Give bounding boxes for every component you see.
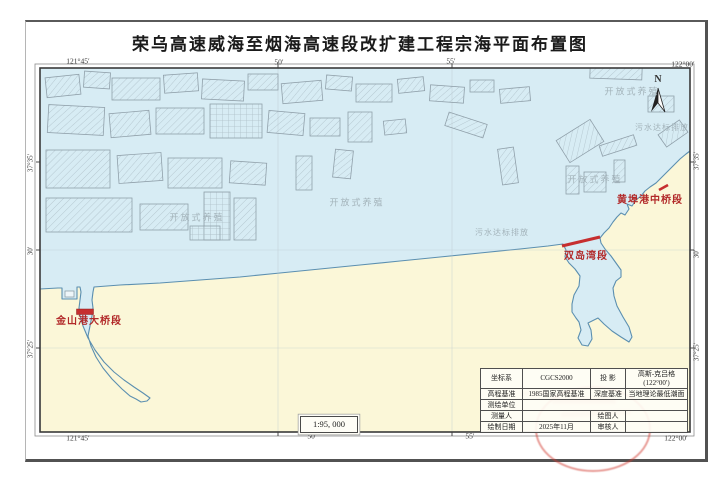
aquaculture-zone: [397, 77, 424, 94]
graticule-edge-label: 37°35′: [694, 152, 701, 170]
elev-label: 高程基准: [481, 389, 523, 400]
graticule-edge-label: 30′: [694, 250, 701, 259]
checker-value: [626, 422, 688, 433]
aquaculture-zone: [234, 198, 256, 240]
coord-value: CGCS2000: [523, 369, 591, 389]
aquaculture-area-label: 开放式养殖: [604, 88, 659, 97]
aquaculture-area-label: 污水达标排放: [475, 229, 529, 237]
proj-value: 高斯-克吕格 (122°00′): [626, 369, 688, 389]
aquaculture-area-label: 开放式养殖: [169, 214, 224, 223]
aquaculture-zone: [356, 84, 392, 102]
aquaculture-zone: [46, 198, 132, 232]
aquaculture-zone: [248, 74, 278, 90]
aquaculture-zone: [310, 118, 340, 136]
proj-label: 投 影: [591, 369, 626, 389]
aquaculture-zone: [429, 85, 464, 103]
graticule-corner-label: 55′: [465, 432, 474, 440]
scale-bar: 1:95, 000: [300, 416, 358, 433]
aquaculture-zone: [229, 161, 266, 185]
aquaculture-area-label: 污水达标排放: [635, 124, 689, 132]
depth-label: 深度基准: [591, 389, 626, 400]
proj-value-line2: (122°00′): [627, 379, 686, 387]
graticule-corner-label: 55′: [446, 57, 455, 65]
aquaculture-zone: [267, 110, 305, 135]
aquaculture-zone: [210, 104, 262, 138]
drafter-label: 绘图人: [591, 411, 626, 422]
aquaculture-zone: [112, 78, 160, 100]
aquaculture-zone: [117, 152, 163, 183]
aquaculture-zone: [163, 73, 198, 93]
aquaculture-zone: [325, 75, 352, 91]
survey-unit-value: [523, 400, 688, 411]
drafter-value: [626, 411, 688, 422]
graticule-edge-label: 30′: [28, 247, 35, 256]
bridge-section-label: 双岛湾段: [564, 252, 608, 262]
bridge-mark-jinshan: [77, 309, 94, 315]
aquaculture-zone: [46, 150, 110, 188]
aquaculture-zone: [296, 156, 312, 190]
aquaculture-zone: [168, 158, 222, 188]
aquaculture-zone: [499, 87, 530, 104]
scanned-map-page: 荣乌高速威海至烟海高速段改扩建工程宗海平面布置图: [0, 0, 720, 486]
surveyor-label: 测量人: [481, 411, 523, 422]
aquaculture-zone: [109, 110, 151, 137]
surveyor-value: [523, 411, 591, 422]
pier-outline: [65, 291, 74, 297]
aquaculture-zone: [190, 226, 220, 240]
graticule-corner-label: 121°45′: [66, 57, 89, 65]
elev-value: 1985国家高程基准: [523, 389, 591, 400]
checker-label: 审核人: [591, 422, 626, 433]
graticule-corner-label: 121°45′: [66, 434, 89, 442]
bridge-section-label: 黄埠港中桥段: [617, 196, 683, 206]
graticule-corner-label: 122°00′: [664, 434, 687, 442]
graticule-corner-label: 122°00′: [671, 60, 694, 68]
coord-label: 坐标系: [481, 369, 523, 389]
depth-value: 当地理论最低潮面: [626, 389, 688, 400]
aquaculture-zone: [383, 119, 406, 135]
aquaculture-zone: [202, 79, 245, 101]
graticule-edge-label: 37°25′: [694, 343, 701, 361]
aquaculture-zone: [47, 105, 104, 136]
aquaculture-zone: [333, 149, 354, 179]
aquaculture-zone: [281, 80, 323, 103]
north-label: N: [654, 75, 661, 85]
aquaculture-zone: [45, 74, 81, 97]
aquaculture-area-label: 开放式养殖: [329, 199, 384, 208]
aquaculture-area-label: 开放式养殖: [567, 176, 622, 185]
graticule-edge-label: 37°25′: [28, 340, 35, 358]
map-title: 荣乌高速威海至烟海高速段改扩建工程宗海平面布置图: [0, 30, 720, 55]
graticule-edge-label: 37°35′: [28, 154, 35, 172]
proj-value-line1: 高斯-克吕格: [627, 370, 686, 378]
date-value: 2025年11月: [523, 422, 591, 433]
aquaculture-zone: [156, 108, 204, 134]
aquaculture-zone: [348, 112, 372, 142]
graticule-corner-label: 50′: [307, 432, 316, 440]
survey-unit-label: 测绘单位: [481, 400, 523, 411]
aquaculture-zone: [470, 80, 494, 92]
aquaculture-zone: [83, 71, 110, 89]
date-label: 绘制日期: [481, 422, 523, 433]
survey-info-table: 坐标系 CGCS2000 投 影 高斯-克吕格 (122°00′) 高程基准 1…: [480, 368, 688, 433]
graticule-corner-label: 50′: [274, 58, 283, 66]
bridge-section-label: 金山港大桥段: [56, 317, 122, 327]
